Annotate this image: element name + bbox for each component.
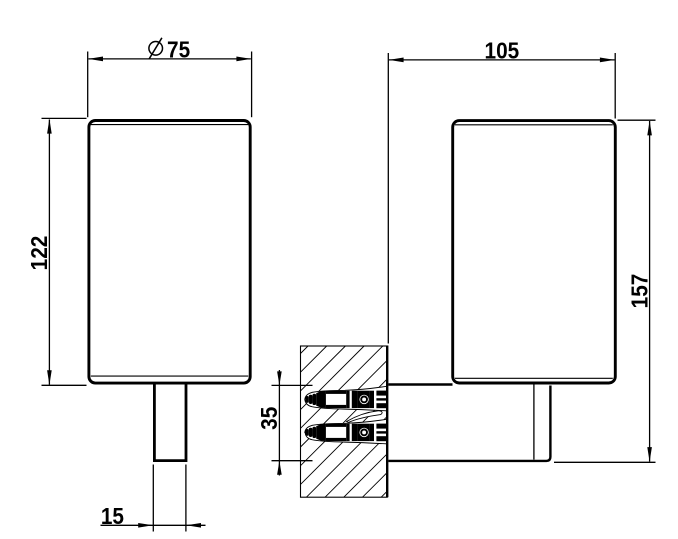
- svg-text:75: 75: [167, 36, 190, 62]
- svg-text:157: 157: [626, 274, 652, 309]
- svg-text:122: 122: [26, 236, 52, 271]
- svg-text:15: 15: [101, 503, 124, 529]
- svg-text:105: 105: [485, 38, 520, 64]
- svg-text:35: 35: [256, 407, 282, 430]
